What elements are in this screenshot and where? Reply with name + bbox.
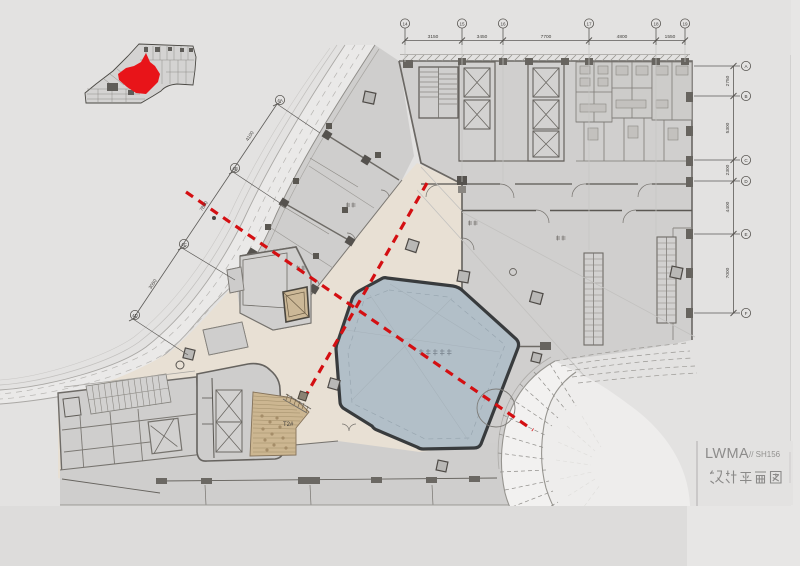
svg-text:3450: 3450: [477, 34, 488, 40]
svg-text:T2#: T2#: [283, 422, 294, 428]
svg-text:4A: 4A: [277, 98, 284, 103]
svg-text:4400: 4400: [725, 201, 731, 212]
svg-text:// SH156: // SH156: [749, 450, 781, 459]
svg-text:1550: 1550: [665, 34, 676, 40]
svg-text:2300: 2300: [725, 164, 731, 175]
svg-text:4D: 4D: [132, 313, 139, 318]
svg-text:15: 15: [459, 21, 465, 26]
svg-text:17: 17: [586, 21, 592, 26]
svg-text:4C: 4C: [181, 242, 188, 247]
svg-text:5300: 5300: [725, 122, 731, 133]
svg-text:7000: 7000: [725, 267, 731, 278]
svg-text:2750: 2750: [725, 75, 731, 86]
svg-text:14: 14: [402, 21, 408, 26]
svg-text:B: B: [744, 94, 747, 99]
svg-text:LWMA: LWMA: [705, 446, 749, 462]
svg-text:4B: 4B: [232, 166, 238, 171]
svg-text:18: 18: [653, 21, 659, 26]
svg-text:E: E: [744, 232, 747, 237]
svg-text:16: 16: [500, 21, 506, 26]
svg-text:4800: 4800: [617, 34, 628, 40]
svg-text:19: 19: [682, 21, 688, 26]
svg-text:7700: 7700: [541, 34, 552, 40]
svg-text:F: F: [745, 311, 748, 316]
svg-text:3150: 3150: [428, 34, 439, 40]
